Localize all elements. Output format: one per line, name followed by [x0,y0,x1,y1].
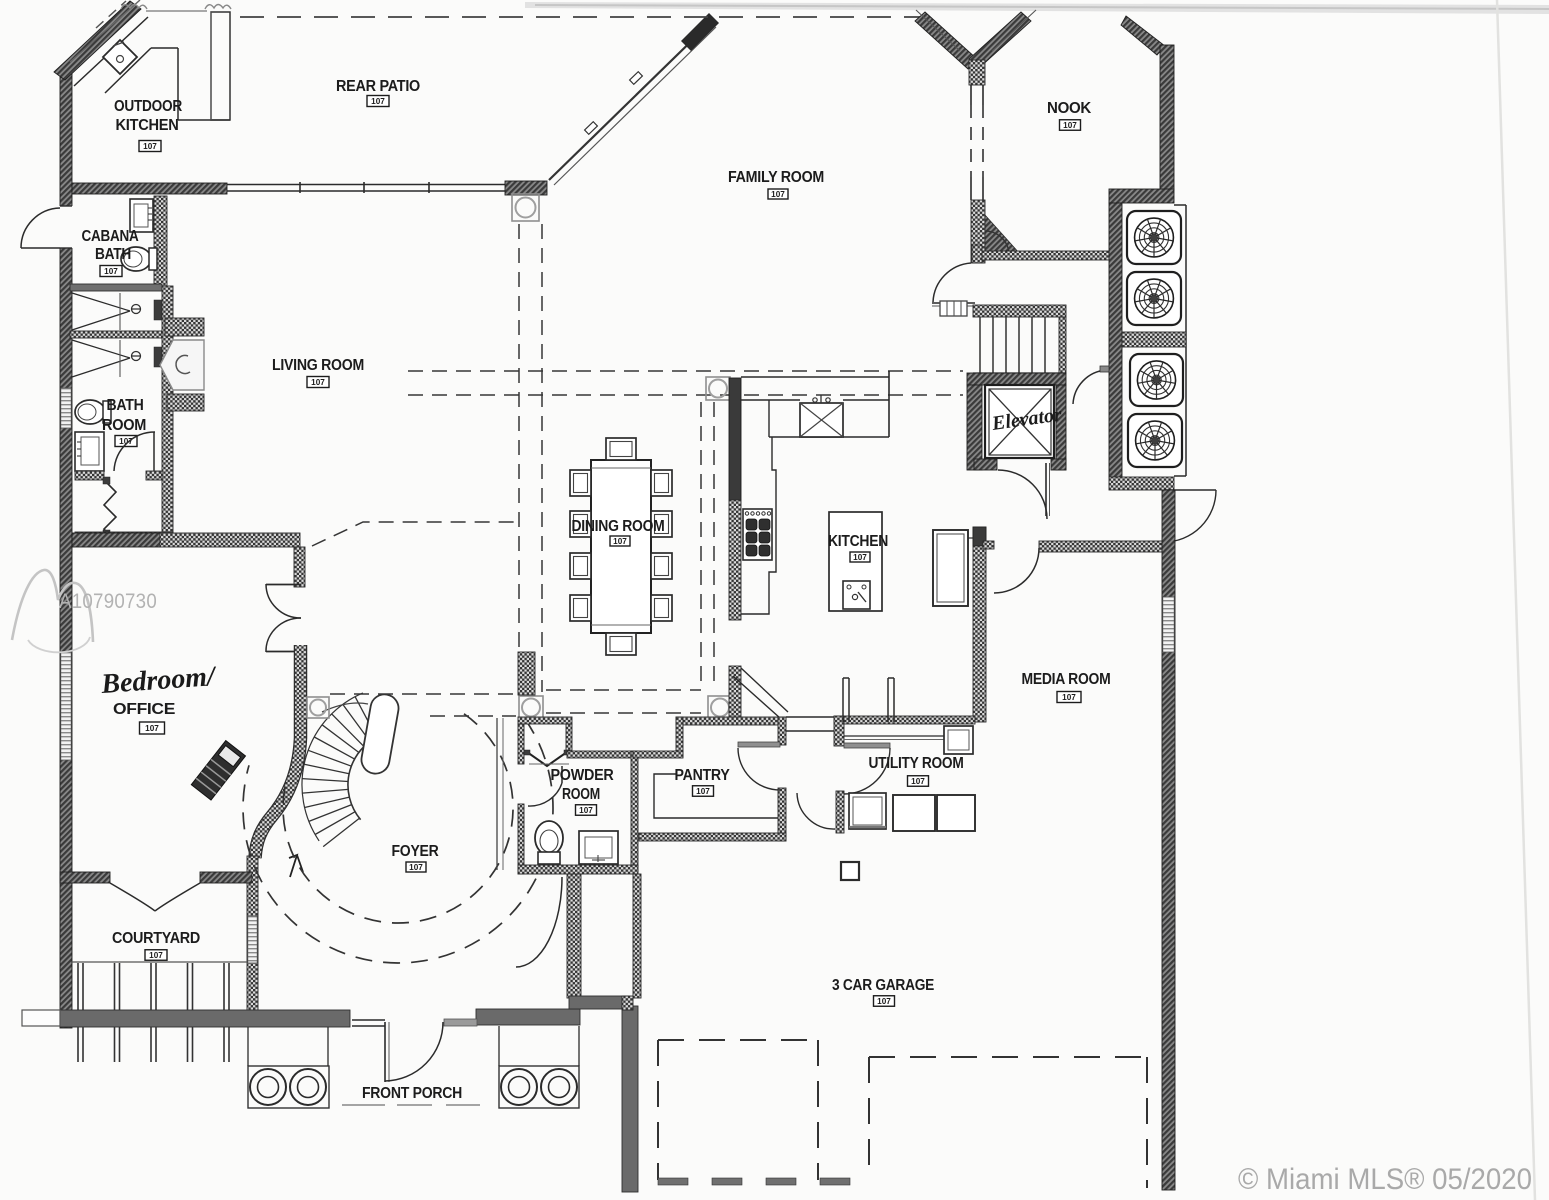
svg-text:OUTDOOR: OUTDOOR [114,98,182,115]
svg-text:107: 107 [613,537,627,546]
svg-text:107: 107 [911,777,925,786]
svg-text:107: 107 [311,378,325,387]
svg-text:107: 107 [104,267,118,276]
svg-text:FRONT PORCH: FRONT PORCH [362,1085,462,1102]
svg-text:107: 107 [149,951,163,960]
svg-text:A10790730: A10790730 [59,590,157,613]
svg-text:107: 107 [119,437,133,446]
svg-text:3 CAR GARAGE: 3 CAR GARAGE [832,977,934,994]
svg-text:CABANA: CABANA [82,228,139,245]
svg-text:107: 107 [853,553,867,562]
svg-text:POWDER: POWDER [551,767,614,784]
svg-text:FOYER: FOYER [392,843,439,860]
svg-text:OFFICE: OFFICE [113,701,175,718]
svg-text:107: 107 [579,806,593,815]
svg-text:107: 107 [145,724,159,733]
svg-text:107: 107 [696,787,710,796]
svg-text:107: 107 [1063,121,1077,130]
svg-text:FAMILY ROOM: FAMILY ROOM [728,169,824,186]
svg-text:107: 107 [371,97,385,106]
svg-text:107: 107 [1062,693,1076,702]
svg-text:107: 107 [143,142,157,151]
svg-text:LIVING ROOM: LIVING ROOM [272,357,364,374]
svg-text:KITCHEN: KITCHEN [116,117,179,134]
svg-text:MEDIA ROOM: MEDIA ROOM [1022,671,1111,688]
svg-text:ROOM: ROOM [102,417,146,434]
svg-text:107: 107 [771,190,785,199]
svg-text:BATH: BATH [107,397,144,414]
svg-text:NOOK: NOOK [1047,100,1092,117]
svg-text:REAR PATIO: REAR PATIO [336,78,420,95]
svg-text:107: 107 [409,863,423,872]
svg-text:COURTYARD: COURTYARD [112,930,200,947]
svg-text:© Miami MLS® 05/2020: © Miami MLS® 05/2020 [1238,1163,1532,1196]
svg-text:UTILITY ROOM: UTILITY ROOM [869,755,964,772]
svg-text:PANTRY: PANTRY [675,767,731,784]
svg-text:DINING ROOM: DINING ROOM [572,518,665,535]
svg-text:BATH: BATH [95,246,131,263]
svg-text:ROOM: ROOM [562,786,600,803]
svg-text:107: 107 [877,997,891,1006]
svg-text:KITCHEN: KITCHEN [828,533,888,550]
